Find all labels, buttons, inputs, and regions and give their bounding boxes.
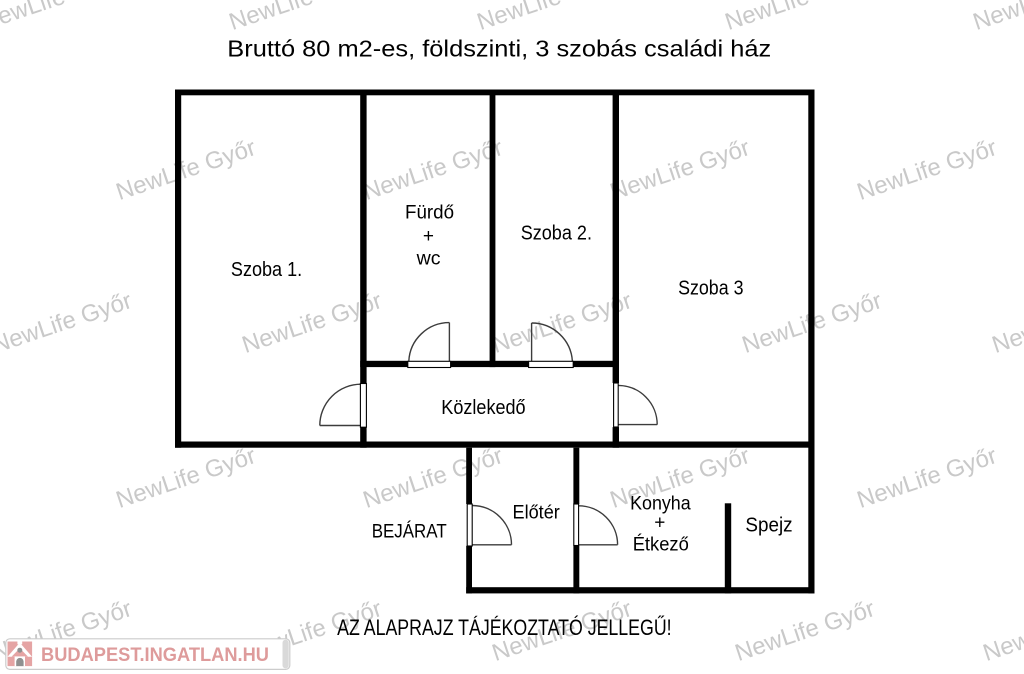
svg-text:AZ ALAPRAJZ TÁJÉKOZTATÓ JELLEG: AZ ALAPRAJZ TÁJÉKOZTATÓ JELLEGŰ! xyxy=(337,615,671,640)
svg-text:Előtér: Előtér xyxy=(513,503,561,524)
svg-text:Szoba 3: Szoba 3 xyxy=(678,277,743,299)
svg-text:+: + xyxy=(654,513,665,534)
svg-text:Közlekedő: Közlekedő xyxy=(441,397,525,419)
svg-text:Szoba 1.: Szoba 1. xyxy=(231,259,302,281)
svg-text:Konyha: Konyha xyxy=(630,494,691,515)
svg-text:Étkező: Étkező xyxy=(633,535,689,556)
svg-text:Szoba 2.: Szoba 2. xyxy=(521,222,592,244)
svg-text:Spejz: Spejz xyxy=(745,515,792,537)
svg-text:+: + xyxy=(423,226,434,247)
svg-text:Fürdő: Fürdő xyxy=(405,202,454,223)
svg-text:Bruttó 80 m2-es, földszinti, 3: Bruttó 80 m2-es, földszinti, 3 szobás cs… xyxy=(227,36,771,62)
svg-text:wc: wc xyxy=(416,249,441,270)
svg-text:BUDAPEST.INGATLAN.HU: BUDAPEST.INGATLAN.HU xyxy=(41,644,269,666)
svg-text:BEJÁRAT: BEJÁRAT xyxy=(372,521,447,542)
